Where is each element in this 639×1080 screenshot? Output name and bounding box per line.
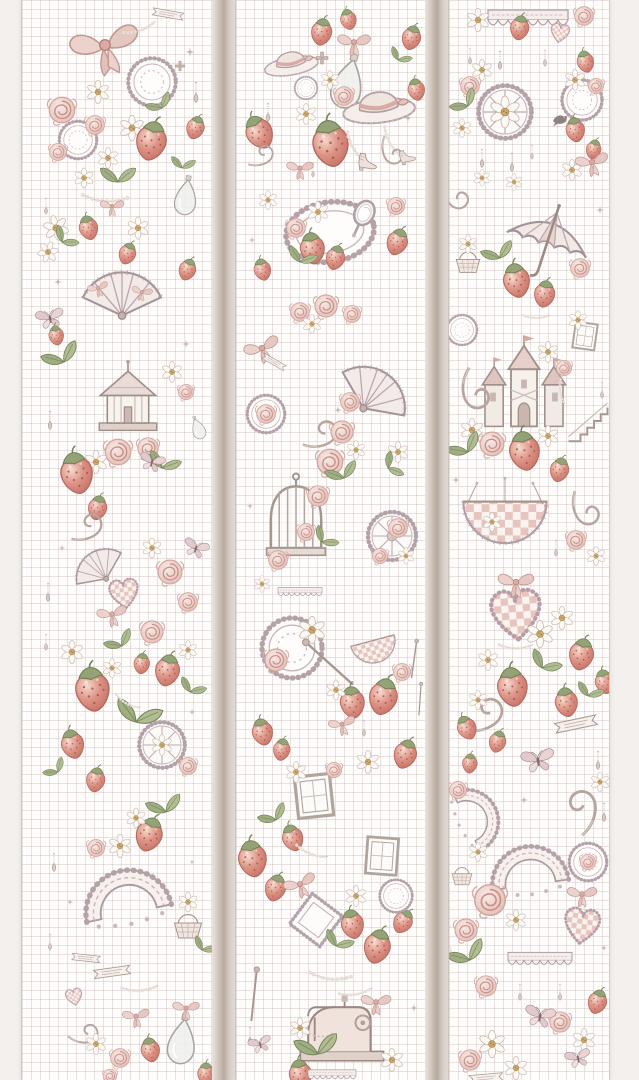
banner-icon <box>554 715 597 733</box>
heart-icon <box>108 578 140 610</box>
daisy-icon <box>474 170 491 187</box>
rose-icon <box>267 551 288 571</box>
rose-icon <box>569 259 590 279</box>
butterfly-icon <box>35 307 66 329</box>
banner-icon <box>152 8 184 20</box>
strawberry-icon <box>251 254 274 283</box>
needle-icon <box>504 477 506 501</box>
sparkle-icon <box>601 945 608 952</box>
strawberry-icon <box>75 210 100 242</box>
sticker-sheet-photo <box>0 0 639 1080</box>
pearls-icon <box>309 972 351 981</box>
daisy-icon <box>103 658 122 677</box>
rose-icon <box>139 621 164 645</box>
pearls-icon <box>499 645 533 649</box>
sparkle-icon <box>452 476 460 484</box>
rose-icon <box>458 1050 481 1072</box>
strawberry-icon <box>85 763 108 794</box>
lacearc-icon <box>78 862 174 935</box>
bow-icon <box>338 35 371 56</box>
daisy-icon <box>295 103 316 124</box>
swirl-icon <box>561 788 602 837</box>
stair-icon <box>569 403 608 441</box>
strawberry-icon <box>235 833 269 879</box>
sparkle-icon <box>189 709 196 716</box>
shoe-icon <box>358 153 378 172</box>
bow-icon <box>96 605 129 629</box>
swirl-icon <box>67 513 104 543</box>
charm-icon <box>602 803 606 822</box>
strawberry-icon <box>57 723 87 761</box>
bow-icon <box>173 1002 200 1020</box>
swirl-icon <box>440 176 470 212</box>
gbunting-icon <box>463 502 546 544</box>
frame-icon <box>294 773 333 818</box>
strawberry-icon <box>248 713 275 748</box>
cross-icon <box>175 61 185 71</box>
leaf-icon <box>257 802 289 827</box>
strawberry-icon <box>552 682 580 719</box>
left-tape-strip-motifs <box>34 8 217 1080</box>
daisy-icon <box>459 234 478 253</box>
strawberry-icon <box>56 443 96 496</box>
sparkle-icon <box>67 899 74 906</box>
bird-icon <box>553 115 567 126</box>
basket-icon <box>456 252 479 272</box>
gbunting-icon <box>351 635 400 668</box>
heart-icon <box>562 907 601 946</box>
rose-icon <box>86 840 105 859</box>
strawberry-icon <box>567 632 598 673</box>
charm-icon <box>498 51 502 70</box>
house-icon <box>99 360 157 430</box>
charm-icon <box>554 540 557 557</box>
strawberry-icon <box>585 984 611 1016</box>
leaf-icon <box>191 936 217 956</box>
sparkle-icon <box>247 503 254 510</box>
rose-icon <box>177 384 194 401</box>
daisy-icon <box>34 238 61 265</box>
daisy-icon <box>505 909 526 930</box>
heart-icon <box>549 23 570 44</box>
swirl-icon <box>571 488 600 527</box>
daisy-icon <box>85 1033 106 1054</box>
bottle-icon <box>166 1013 199 1066</box>
right-tape-strip-motifs <box>440 7 616 1080</box>
swirl-icon <box>381 134 403 164</box>
charm-icon <box>44 198 47 215</box>
daisy-icon <box>86 80 109 103</box>
rose-icon <box>478 432 505 458</box>
daisy-icon <box>60 640 83 663</box>
charm-icon <box>543 50 546 67</box>
daisy-icon <box>537 425 558 446</box>
strawberry-icon <box>487 726 510 755</box>
sparkle-icon <box>182 340 190 348</box>
rose-icon <box>386 198 405 217</box>
rose-icon <box>473 885 508 918</box>
strawberry-icon <box>452 709 480 742</box>
rose-icon <box>453 919 478 943</box>
basket-icon <box>175 915 202 938</box>
leaf-icon <box>170 156 196 170</box>
charm-icon <box>531 145 534 160</box>
leaf-icon <box>447 939 488 969</box>
rose-icon <box>177 593 198 613</box>
sparkle-icon <box>54 278 62 286</box>
daisy-icon <box>179 640 198 659</box>
pearls-icon <box>447 926 452 954</box>
strawberry-icon <box>116 237 140 266</box>
swirl-icon <box>245 145 274 168</box>
rose-icon <box>329 421 354 445</box>
strawberry-icon <box>574 46 597 75</box>
daisy-icon <box>453 118 472 137</box>
strawberry-icon <box>309 13 334 47</box>
rose-icon <box>102 1069 118 1080</box>
charm-icon <box>48 411 52 430</box>
bow-icon <box>287 162 314 180</box>
banner-icon <box>72 953 101 962</box>
daisy-icon <box>504 1056 527 1079</box>
sparkle-icon <box>186 48 195 57</box>
rose-icon <box>103 439 132 467</box>
butterfly-icon <box>520 748 556 773</box>
daisy-icon <box>254 576 271 593</box>
bow-icon <box>122 1009 151 1029</box>
bottle-icon <box>188 414 208 440</box>
heart-icon <box>65 987 84 1006</box>
charm-icon <box>596 751 600 770</box>
rose-icon <box>474 976 497 998</box>
sparkle-icon <box>249 237 256 244</box>
daisy-icon <box>142 538 162 558</box>
rose-icon <box>48 144 67 163</box>
daisy-icon <box>572 1028 595 1051</box>
sparkle-icon <box>520 796 528 804</box>
rose-icon <box>339 393 360 413</box>
daisy-icon <box>345 885 366 906</box>
daisy-icon <box>161 361 182 382</box>
needle-icon <box>410 639 419 679</box>
pearls-icon <box>122 985 159 991</box>
leaf-icon <box>528 649 562 676</box>
doily-icon <box>295 77 318 100</box>
strawberry-icon <box>506 423 543 472</box>
leaf-icon <box>103 628 135 653</box>
butterfly-icon <box>564 1048 592 1069</box>
rose-icon <box>371 548 388 565</box>
strawberry-icon <box>548 452 573 484</box>
daisy-icon <box>347 440 366 459</box>
motif-layer <box>0 0 639 1080</box>
leaf-icon <box>43 757 68 780</box>
leaf-icon <box>145 794 182 816</box>
charm-icon <box>194 82 198 103</box>
sparkle-icon <box>189 859 195 865</box>
leaf-icon <box>41 341 82 371</box>
charm-icon <box>48 934 51 951</box>
strawberry-icon <box>532 275 557 309</box>
valance-icon <box>308 1070 356 1079</box>
rose-icon <box>573 7 594 27</box>
strawberry-icon <box>133 649 152 675</box>
pearls-icon <box>382 127 402 158</box>
fan-icon <box>83 272 161 319</box>
strawberry-icon <box>237 107 278 154</box>
charm-icon <box>46 583 50 602</box>
strawberry-icon <box>399 20 424 52</box>
shoe-icon <box>399 149 416 165</box>
daisy-icon <box>259 190 278 209</box>
daisy-icon <box>356 750 379 773</box>
hat-icon <box>262 48 319 80</box>
bottle-icon <box>173 174 199 216</box>
charm-icon <box>44 634 47 651</box>
doily-icon <box>447 315 477 345</box>
butterfly-icon <box>247 1034 273 1054</box>
charm-icon <box>362 720 365 737</box>
daisy-icon <box>41 212 72 243</box>
valance-icon <box>278 587 322 595</box>
needle-icon <box>417 682 423 715</box>
strawberry-icon <box>153 648 184 689</box>
rose-icon <box>342 306 361 325</box>
daisy-icon <box>506 174 523 191</box>
banner-icon <box>93 965 130 978</box>
strawberry-icon <box>198 1059 215 1080</box>
strawberry-icon <box>494 660 529 708</box>
daisy-icon <box>478 1030 505 1058</box>
charm-icon <box>600 382 603 399</box>
daisy-icon <box>108 834 131 857</box>
daisy-icon <box>127 217 149 239</box>
strawberry-icon <box>405 74 426 102</box>
sparkle-icon <box>410 1004 418 1012</box>
sparkle-icon <box>59 545 66 552</box>
strawberry-icon <box>337 4 358 31</box>
banner-icon <box>469 1073 503 1080</box>
rose-icon <box>565 531 586 551</box>
leaf-icon <box>178 677 207 698</box>
dframe-icon <box>286 890 346 950</box>
daisy-icon <box>477 649 498 670</box>
pearls-icon <box>522 315 550 318</box>
bow-icon <box>567 888 597 907</box>
strawberry-icon <box>499 256 532 300</box>
strawberry-icon <box>176 253 200 282</box>
daisy-icon <box>178 892 198 912</box>
leaf-icon <box>480 240 515 263</box>
daisy-icon <box>550 606 573 629</box>
basket-icon <box>452 868 472 885</box>
daisy-icon <box>97 147 118 168</box>
needle-icon <box>249 967 260 1022</box>
rose-icon <box>178 758 197 777</box>
rose-icon <box>156 560 183 586</box>
charm-icon <box>480 149 484 168</box>
charm-icon <box>558 984 561 1001</box>
charm-icon <box>266 103 270 122</box>
charm-icon <box>468 48 471 65</box>
charm-icon <box>518 984 521 1001</box>
daisy-icon <box>466 8 489 31</box>
pearls-icon <box>295 845 328 860</box>
strawberry-icon <box>272 734 293 762</box>
valance-icon <box>508 952 572 964</box>
strawberry-icon <box>462 750 479 774</box>
daisy-icon <box>591 772 610 791</box>
sparkle-icon <box>596 206 604 214</box>
butterfly-icon <box>181 537 210 560</box>
leaf-icon <box>100 168 135 182</box>
strawberry-icon <box>338 903 367 940</box>
sparkle-icon <box>334 406 342 414</box>
strawberry-icon <box>383 222 413 258</box>
daisy-icon <box>587 546 606 565</box>
daisy-icon <box>74 168 94 188</box>
strawberry-icon <box>138 1032 162 1063</box>
doily-icon <box>380 880 413 913</box>
strawberry-icon <box>360 922 395 967</box>
frame-icon <box>365 837 398 875</box>
strawberry-icon <box>184 111 209 142</box>
rose-icon <box>392 664 411 683</box>
middle-tape-strip-motifs <box>235 4 427 1080</box>
rose-icon <box>109 1049 130 1069</box>
rose-icon <box>313 295 338 319</box>
charm-icon <box>52 853 56 872</box>
bow-icon <box>328 716 358 739</box>
strawberry-icon <box>390 733 421 772</box>
charm-icon <box>510 153 514 172</box>
